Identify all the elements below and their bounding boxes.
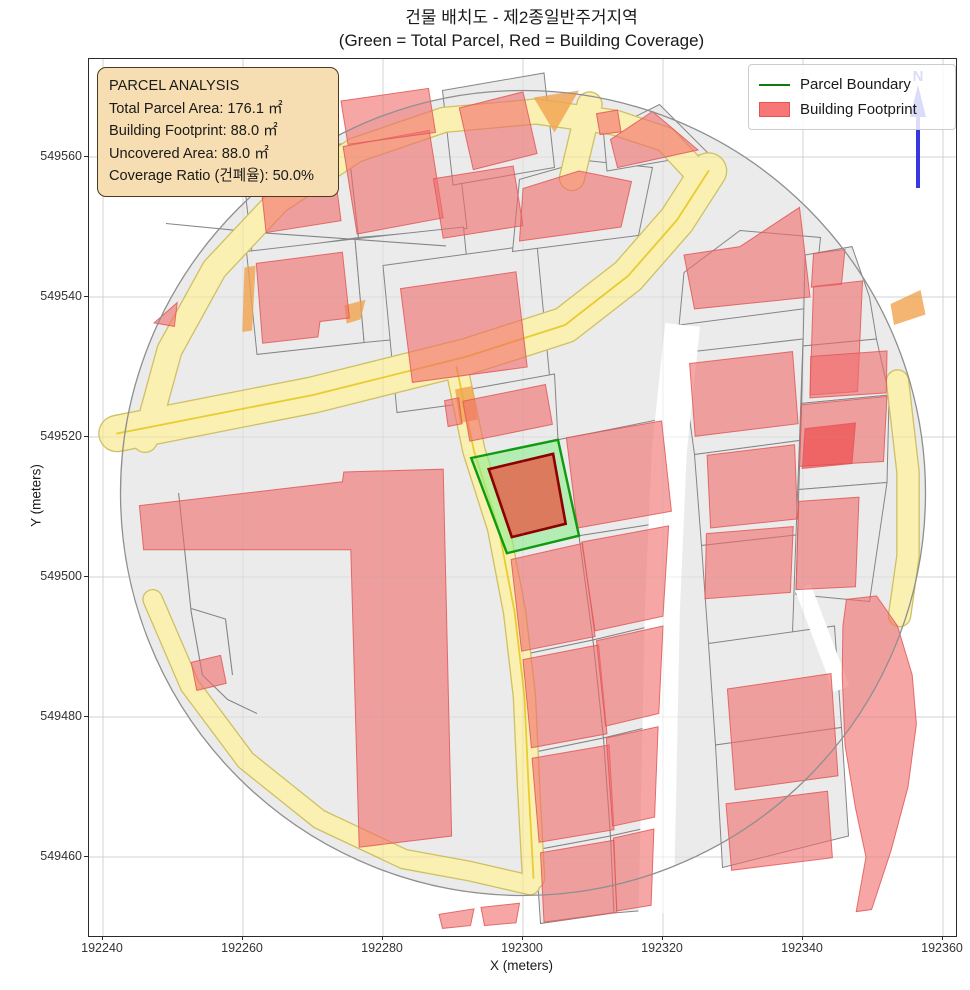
building-footprint: [796, 497, 859, 589]
y-tick-mark: [84, 296, 88, 297]
building-footprint: [191, 655, 226, 690]
y-tick-mark: [84, 156, 88, 157]
building-footprint: [439, 909, 474, 929]
y-tick-label: 549540: [4, 289, 82, 303]
parcel-analysis-line: Total Parcel Area: 176.1 ㎡: [109, 98, 327, 121]
x-tick-label: 192240: [81, 941, 123, 955]
x-tick-label: 192340: [781, 941, 823, 955]
building-footprint: [343, 130, 443, 234]
building-footprint: [445, 398, 463, 427]
legend-label: Building Footprint: [800, 101, 917, 118]
x-tick-mark: [382, 936, 383, 940]
x-tick-label: 192320: [641, 941, 683, 955]
building-footprint: [842, 596, 916, 912]
x-axis-label: X (meters): [88, 958, 955, 973]
parcel-analysis-line: Building Footprint: 88.0 ㎡: [109, 120, 327, 143]
road: [898, 381, 909, 616]
parcel-boundary-line-swatch: [759, 84, 790, 86]
y-tick-mark: [84, 436, 88, 437]
building-footprint: [523, 645, 607, 748]
parcel-analysis-lines: Total Parcel Area: 176.1 ㎡Building Footp…: [109, 98, 327, 188]
y-tick-mark: [84, 856, 88, 857]
parcel-analysis-line: Coverage Ratio (건폐율): 50.0%: [109, 165, 327, 188]
x-tick-label: 192260: [221, 941, 263, 955]
x-tick-mark: [522, 936, 523, 940]
x-tick-label: 192280: [361, 941, 403, 955]
legend: Parcel Boundary Building Footprint: [748, 64, 956, 130]
x-tick-mark: [942, 936, 943, 940]
building-footprint: [433, 166, 523, 238]
building-footprint: [582, 526, 669, 631]
parcel-analysis-title: PARCEL ANALYSIS: [109, 75, 327, 98]
chart-title: 건물 배치도 - 제2종일반주거지역 (Green = Total Parcel…: [88, 6, 955, 52]
building-footprint: [597, 626, 664, 726]
building-footprint-patch-swatch: [759, 102, 790, 117]
y-tick-label: 549480: [4, 709, 82, 723]
y-axis-label: Y (meters): [29, 436, 44, 556]
building-footprint: [810, 351, 887, 398]
x-tick-mark: [242, 936, 243, 940]
building-footprint: [705, 527, 793, 599]
x-tick-label: 192360: [921, 941, 963, 955]
building-footprint: [532, 745, 614, 842]
y-tick-label: 549460: [4, 849, 82, 863]
building-footprint: [511, 543, 595, 651]
title-line-1: 건물 배치도 - 제2종일반주거지역: [88, 6, 955, 29]
parcel-analysis-line: Uncovered Area: 88.0 ㎡: [109, 143, 327, 166]
building-footprint: [481, 903, 520, 925]
x-tick-mark: [102, 936, 103, 940]
road-widening-patch: [891, 290, 926, 325]
building-footprint: [597, 110, 622, 135]
x-tick-mark: [802, 936, 803, 940]
legend-label: Parcel Boundary: [800, 76, 911, 93]
parcel-analysis-box: PARCEL ANALYSIS Total Parcel Area: 176.1…: [97, 67, 339, 197]
building-footprint: [401, 272, 528, 383]
building-footprint: [690, 352, 799, 437]
legend-item-parcel-boundary: Parcel Boundary: [759, 72, 945, 97]
building-footprint: [727, 674, 838, 790]
building-footprint: [802, 423, 855, 469]
building-footprint: [613, 829, 654, 911]
y-tick-mark: [84, 576, 88, 577]
x-tick-mark: [662, 936, 663, 940]
legend-item-building-footprint: Building Footprint: [759, 97, 945, 122]
x-tick-label: 192300: [501, 941, 543, 955]
building-footprint: [707, 445, 797, 528]
y-tick-label: 549500: [4, 569, 82, 583]
figure: 건물 배치도 - 제2종일반주거지역 (Green = Total Parcel…: [0, 0, 970, 990]
title-line-2: (Green = Total Parcel, Red = Building Co…: [88, 29, 955, 52]
building-footprint: [811, 249, 845, 287]
y-tick-label: 549560: [4, 149, 82, 163]
building-footprint: [541, 840, 617, 922]
y-tick-mark: [84, 716, 88, 717]
y-tick-label: 549520: [4, 429, 82, 443]
building-footprint: [606, 727, 658, 826]
